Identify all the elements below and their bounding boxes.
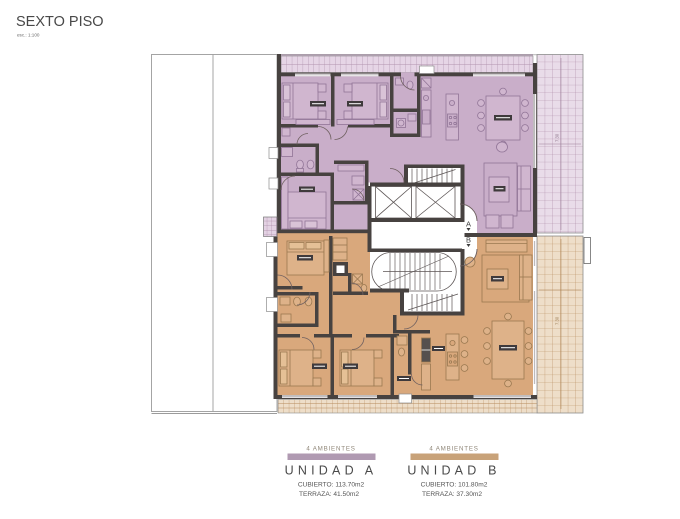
- svg-text:CUBIERTO: 101.80m2: CUBIERTO: 101.80m2: [421, 482, 488, 489]
- svg-text:4 AMBIENTES: 4 AMBIENTES: [429, 446, 478, 453]
- svg-text:CUBIERTO: 113.70m2: CUBIERTO: 113.70m2: [298, 482, 365, 489]
- svg-text:UNIDAD A: UNIDAD A: [285, 464, 378, 478]
- svg-text:A: A: [466, 220, 471, 229]
- svg-text:7.30: 7.30: [555, 133, 560, 142]
- svg-text:UNIDAD B: UNIDAD B: [407, 464, 500, 478]
- svg-text:esc.: 1:100: esc.: 1:100: [17, 33, 40, 38]
- svg-text:B: B: [466, 236, 471, 245]
- svg-text:TERRAZA: 37.30m2: TERRAZA: 37.30m2: [422, 491, 482, 498]
- svg-text:4 AMBIENTES: 4 AMBIENTES: [306, 446, 355, 453]
- svg-text:SEXTO PISO: SEXTO PISO: [16, 14, 104, 30]
- svg-text:7.30: 7.30: [555, 316, 560, 325]
- svg-text:TERRAZA: 41.50m2: TERRAZA: 41.50m2: [299, 491, 359, 498]
